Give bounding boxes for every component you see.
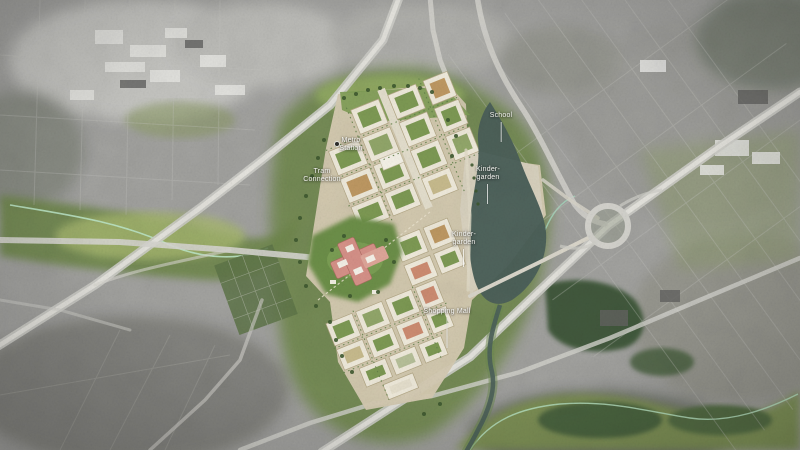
metro-station-marker [334,141,340,147]
label-text: Metro [342,137,361,145]
label-text: Tram [314,168,331,176]
map-label-kindergarden-north: Kinder-garden [476,166,500,204]
masterplan-map: MetroStationTramConnectionSchoolKinder-g… [0,0,800,450]
label-leader-line [488,184,489,204]
map-label-tram-connection: TramConnection [303,168,340,184]
label-text: garden [453,239,476,247]
label-text: Shopping Mall [424,308,471,316]
map-labels: MetroStationTramConnectionSchoolKinder-g… [0,0,800,450]
label-text: Kinder- [476,166,500,174]
label-text: School [490,112,513,120]
label-text: Kinder- [452,231,476,239]
label-text: Station [339,145,362,153]
map-label-school: School [490,112,513,142]
map-label-kindergarden-central: Kinder-garden [452,231,476,267]
label-leader-line [447,318,448,348]
map-label-shopping-mall: Shopping Mall [424,308,471,348]
label-text: garden [477,174,500,182]
label-leader-line [464,249,465,267]
label-text: Connection [303,176,340,184]
label-leader-line [500,122,501,142]
map-label-metro-station: MetroStation [339,137,362,153]
